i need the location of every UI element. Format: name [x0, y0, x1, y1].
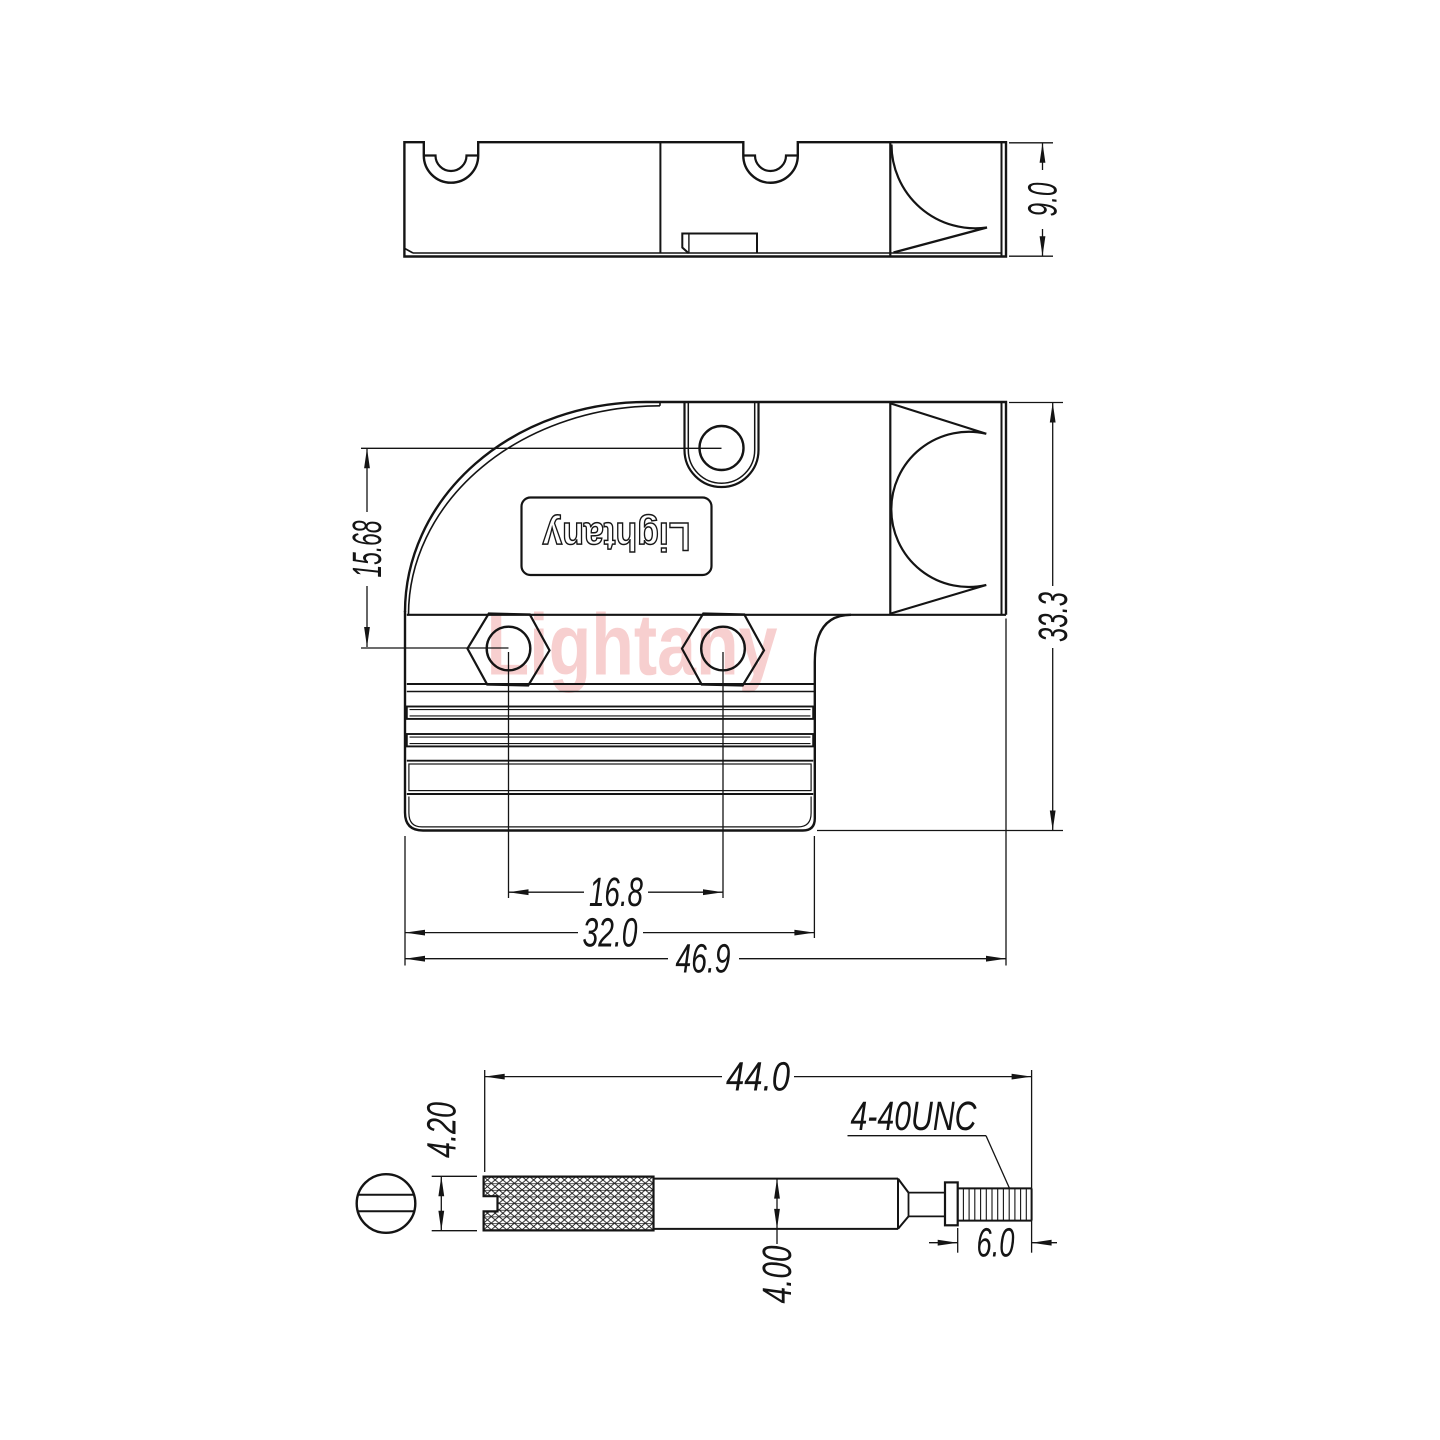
svg-text:4.20: 4.20 [419, 1102, 465, 1158]
svg-text:16.8: 16.8 [589, 869, 643, 915]
svg-text:6.0: 6.0 [977, 1220, 1015, 1266]
svg-text:33.3: 33.3 [1030, 592, 1076, 642]
svg-text:4.00: 4.00 [754, 1245, 800, 1303]
svg-text:44.0: 44.0 [726, 1054, 790, 1100]
svg-text:Lightany: Lightany [542, 514, 691, 558]
svg-text:15.68: 15.68 [344, 520, 390, 577]
svg-text:9.0: 9.0 [1020, 182, 1066, 216]
svg-text:46.9: 46.9 [676, 936, 731, 982]
svg-text:4-40UNC: 4-40UNC [851, 1093, 977, 1139]
svg-text:32.0: 32.0 [583, 910, 638, 956]
